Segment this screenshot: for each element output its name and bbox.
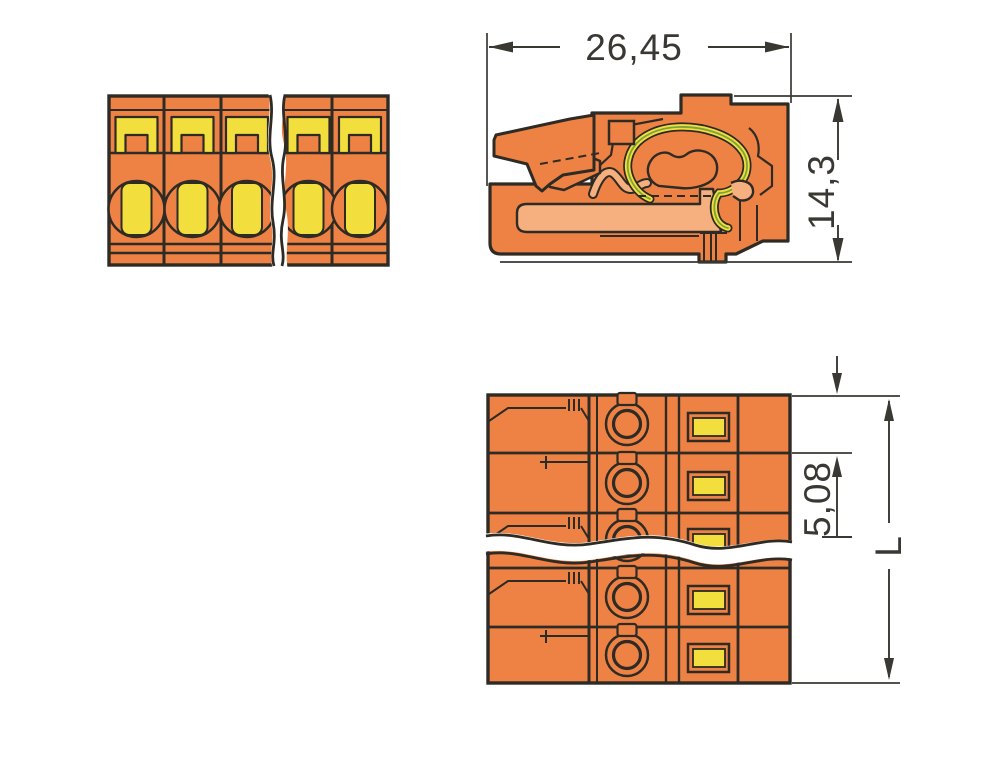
side-busbar xyxy=(648,151,717,189)
dimension-length: L xyxy=(792,399,909,683)
technical-drawing-page: 26,45 14,3 5,08 L xyxy=(0,0,1000,769)
front-view xyxy=(109,91,389,270)
dimension-pitch: 5,08 xyxy=(792,356,900,537)
technical-drawing-canvas: 26,45 14,3 5,08 L xyxy=(0,0,1000,769)
side-square-opening xyxy=(609,121,634,144)
top-view xyxy=(483,393,795,683)
dimension-length-label: L xyxy=(868,535,909,557)
dimension-depth-label: 26,45 xyxy=(585,27,683,68)
dimension-height-label: 14,3 xyxy=(801,154,842,230)
side-section-view xyxy=(490,95,788,262)
side-clamp-hook xyxy=(731,181,753,201)
dimension-pitch-label: 5,08 xyxy=(797,461,838,537)
